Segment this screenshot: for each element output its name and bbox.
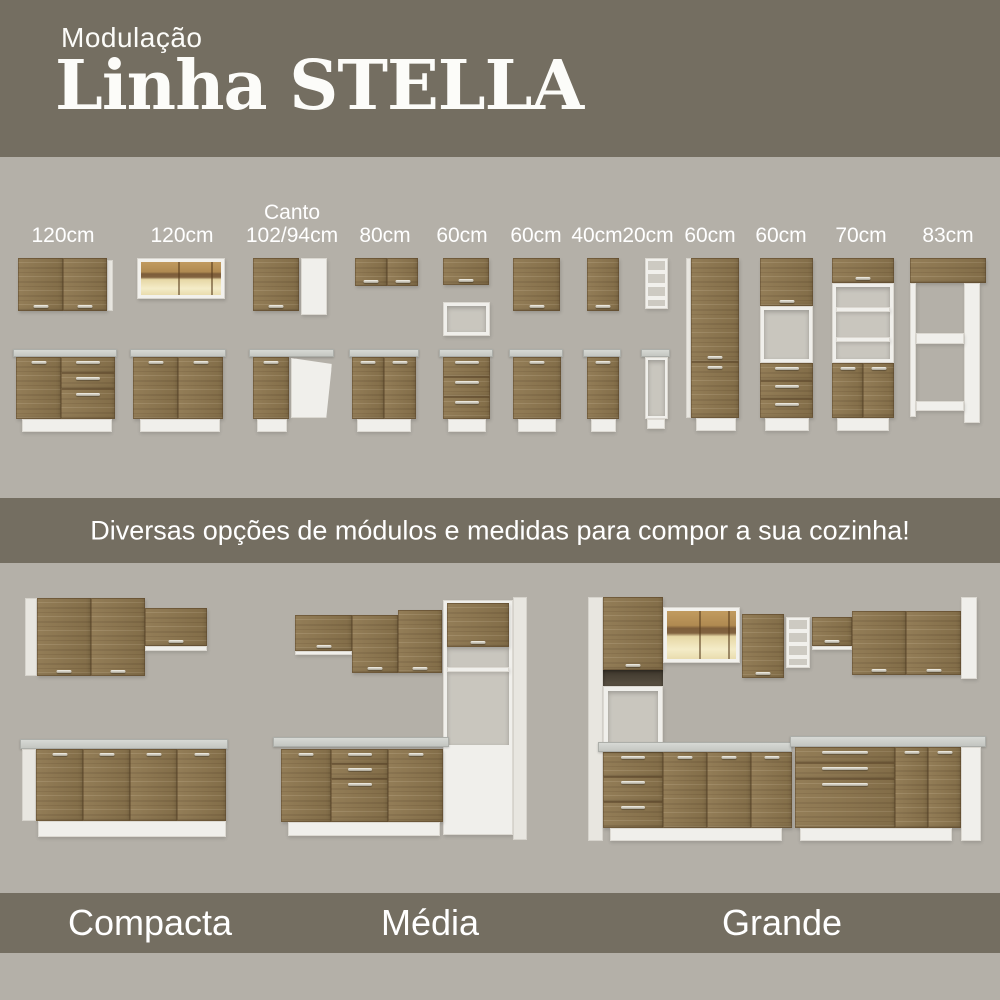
countertop bbox=[249, 349, 334, 357]
column-cavity bbox=[648, 360, 665, 416]
shelf-cells bbox=[789, 620, 807, 665]
tower-door bbox=[603, 597, 663, 670]
countertop bbox=[641, 349, 670, 357]
shelf bbox=[836, 307, 890, 312]
side-panel bbox=[961, 747, 981, 841]
plinth bbox=[610, 828, 782, 841]
drawer bbox=[603, 802, 663, 828]
module-size-label: 20cm bbox=[622, 201, 673, 247]
shelving-cavity bbox=[836, 287, 890, 359]
module-size-label: 60cm bbox=[684, 201, 735, 247]
base-door bbox=[36, 749, 83, 821]
side-panel bbox=[25, 598, 37, 676]
drawer bbox=[795, 747, 895, 763]
base-door bbox=[352, 357, 384, 419]
tall-door-upper bbox=[691, 258, 739, 362]
base-door bbox=[83, 749, 130, 821]
drawer bbox=[443, 357, 490, 377]
lit-interior bbox=[141, 262, 221, 295]
tower-cavity bbox=[608, 691, 658, 747]
countertop bbox=[790, 736, 986, 747]
corner-base-panel bbox=[291, 358, 332, 418]
deep-drawer bbox=[331, 779, 388, 822]
side-panel bbox=[588, 597, 603, 841]
kitchen-label-media: Média bbox=[381, 893, 479, 953]
base-door bbox=[895, 747, 928, 828]
countertop bbox=[273, 737, 449, 747]
module-size-label: 120cm bbox=[150, 201, 213, 247]
plinth bbox=[448, 419, 486, 432]
kitchens-section bbox=[0, 563, 1000, 893]
plinth bbox=[765, 418, 809, 431]
lit-interior bbox=[667, 611, 736, 659]
frame-column bbox=[964, 283, 980, 423]
wall-door bbox=[587, 258, 619, 311]
wall-door bbox=[63, 258, 107, 311]
countertop bbox=[13, 349, 117, 357]
base-door bbox=[16, 357, 61, 419]
countertop bbox=[130, 349, 226, 357]
niche-cavity bbox=[764, 310, 809, 359]
wall-door bbox=[18, 258, 63, 311]
page-title: Linha STELLA bbox=[55, 46, 583, 126]
base-door bbox=[388, 749, 443, 822]
corner-wall-panel bbox=[301, 258, 327, 315]
module-size-label: 40cm bbox=[571, 201, 622, 247]
base-door bbox=[707, 752, 751, 828]
wall-door bbox=[906, 611, 961, 675]
bottom-band: Compacta Média Grande bbox=[0, 893, 1000, 953]
base-door bbox=[663, 752, 707, 828]
drawer bbox=[603, 777, 663, 802]
countertop bbox=[583, 349, 621, 357]
module-size-label: 120cm bbox=[31, 201, 94, 247]
drawer bbox=[331, 764, 388, 779]
shelf-cells bbox=[648, 261, 665, 306]
base-door bbox=[928, 747, 961, 828]
plinth bbox=[288, 822, 440, 836]
frame-top-panel bbox=[910, 258, 986, 283]
cabinet-bottom bbox=[295, 651, 352, 655]
corner-base-door bbox=[253, 357, 289, 419]
drawer bbox=[61, 389, 115, 419]
footer-space bbox=[0, 953, 1000, 1000]
glass-door-cabinet bbox=[663, 607, 740, 663]
module-size-label: 83cm bbox=[922, 201, 973, 247]
tower-niche bbox=[447, 647, 509, 745]
plinth bbox=[22, 419, 112, 432]
frame-shelf bbox=[916, 401, 964, 411]
plinth bbox=[800, 828, 952, 841]
module-size-label: 60cm bbox=[755, 201, 806, 247]
base-door bbox=[133, 357, 178, 419]
tall-door-lower bbox=[691, 362, 739, 418]
modules-section: 120cm 120cm Canto102/94cm 80cm 60cm 60cm… bbox=[0, 157, 1000, 498]
plinth bbox=[647, 419, 665, 429]
drawer bbox=[795, 763, 895, 779]
countertop bbox=[509, 349, 563, 357]
base-door bbox=[587, 357, 619, 419]
plinth bbox=[696, 418, 736, 431]
wall-door bbox=[91, 598, 145, 676]
module-size-label: Canto102/94cm bbox=[246, 201, 338, 247]
base-door bbox=[281, 749, 331, 822]
drawer bbox=[61, 357, 115, 373]
side-panel bbox=[22, 749, 36, 821]
glass-door-cabinet bbox=[137, 258, 225, 299]
drawer bbox=[760, 363, 813, 381]
plinth bbox=[837, 418, 889, 431]
corner-shelf-unit bbox=[786, 617, 810, 668]
frame-stile bbox=[910, 283, 916, 417]
drawer bbox=[760, 381, 813, 399]
side-panel bbox=[961, 597, 977, 679]
base-door bbox=[178, 357, 223, 419]
plinth bbox=[357, 419, 411, 432]
cabinet-bottom bbox=[812, 646, 852, 650]
countertop bbox=[598, 742, 792, 752]
plinth bbox=[140, 419, 220, 432]
base-door bbox=[513, 357, 561, 419]
wall-door bbox=[295, 615, 352, 651]
deep-drawer bbox=[795, 779, 895, 828]
plinth bbox=[518, 419, 556, 432]
niche-cavity bbox=[447, 306, 486, 332]
shelf bbox=[447, 667, 509, 672]
shelf-unit bbox=[645, 258, 668, 309]
plinth bbox=[591, 419, 616, 432]
tall-door-upper bbox=[760, 258, 813, 306]
wall-door bbox=[355, 258, 387, 286]
header: Modulação Linha STELLA bbox=[0, 0, 1000, 157]
drawer bbox=[603, 752, 663, 777]
drawer bbox=[443, 397, 490, 419]
drawer bbox=[331, 749, 388, 764]
base-door bbox=[130, 749, 177, 821]
wall-door bbox=[145, 608, 207, 646]
cabinet-bottom bbox=[145, 646, 207, 651]
plinth bbox=[38, 821, 226, 837]
base-door bbox=[751, 752, 792, 828]
drawer bbox=[443, 377, 490, 397]
drawer bbox=[61, 373, 115, 389]
wall-door bbox=[398, 610, 442, 673]
tall-door-lower bbox=[832, 363, 863, 418]
shelf bbox=[836, 337, 890, 342]
banner-text: Diversas opções de módulos e medidas par… bbox=[0, 515, 1000, 546]
side-panel bbox=[107, 260, 113, 311]
frame-shelf bbox=[916, 333, 964, 344]
promo-image: Modulação Linha STELLA 120cm 120cm Canto… bbox=[0, 0, 1000, 1000]
wall-door bbox=[742, 614, 784, 678]
module-size-label: 80cm bbox=[359, 201, 410, 247]
tall-door-upper bbox=[832, 258, 894, 283]
corner-wall-door bbox=[253, 258, 299, 311]
tower-dark-niche bbox=[603, 670, 663, 686]
wall-door bbox=[852, 611, 906, 675]
tall-door-lower bbox=[863, 363, 894, 418]
plinth bbox=[257, 419, 287, 432]
module-size-label: 70cm bbox=[835, 201, 886, 247]
base-door bbox=[177, 749, 226, 821]
side-panel bbox=[513, 597, 527, 840]
module-size-label: 60cm bbox=[436, 201, 487, 247]
drawer bbox=[760, 399, 813, 418]
countertop bbox=[349, 349, 419, 357]
wall-door bbox=[37, 598, 91, 676]
wall-door bbox=[352, 615, 398, 673]
wall-door bbox=[387, 258, 418, 286]
banner: Diversas opções de módulos e medidas par… bbox=[0, 498, 1000, 563]
wall-door bbox=[443, 258, 489, 285]
kitchen-label-grande: Grande bbox=[722, 893, 842, 953]
base-door bbox=[384, 357, 416, 419]
wall-door bbox=[513, 258, 560, 311]
wall-door bbox=[812, 617, 852, 646]
tower-door bbox=[447, 603, 509, 647]
countertop bbox=[439, 349, 493, 357]
kitchen-label-compacta: Compacta bbox=[68, 893, 232, 953]
module-size-label: 60cm bbox=[510, 201, 561, 247]
countertop bbox=[20, 739, 228, 749]
